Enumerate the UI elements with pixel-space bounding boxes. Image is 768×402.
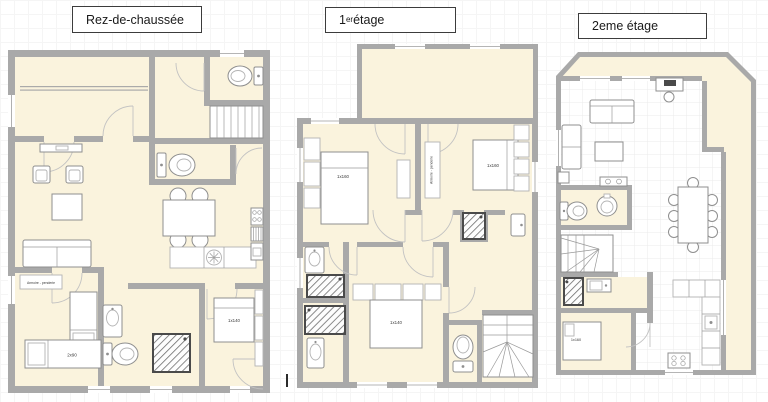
shower-icon [305, 306, 345, 334]
wardrobe-icon [397, 160, 410, 198]
chaise-icon [562, 125, 581, 169]
bathroom-sink-icon [103, 305, 122, 337]
bathroom-sink-icon [305, 247, 324, 273]
shower-icon [307, 275, 344, 297]
tv-unit-icon [40, 144, 82, 152]
floor-label-etage1-rest: étage [353, 13, 384, 27]
floor-label-etage1-num: 1 [339, 13, 346, 27]
closet-icon: Armoire - penderie [425, 142, 440, 198]
stairs-icon [561, 235, 613, 272]
bed-icon: 1x140 [214, 298, 254, 342]
floor-label-etage2-text: 2eme étage [592, 19, 658, 33]
floorplan-etage2: 1x160 [556, 50, 762, 390]
floor-label-rdc-text: Rez-de-chaussée [86, 13, 184, 27]
text-cursor-mark [286, 374, 288, 387]
bathroom-sink-icon [307, 338, 324, 368]
bedside-units-icon [304, 138, 320, 208]
kitchen-counter-icon [170, 247, 256, 268]
sofa-icon [23, 240, 91, 267]
shower-icon [463, 213, 485, 239]
bed-icon: 1x160 [473, 140, 518, 190]
coffee-table-icon [52, 194, 82, 220]
floor-label-etage1: 1er étage [325, 7, 456, 33]
bed-size-label: 1x160 [571, 338, 581, 342]
closet-label: Armoire - penderie [27, 281, 55, 285]
radiator-icon [251, 227, 263, 241]
stove-icon [251, 208, 263, 225]
stairs-icon [483, 315, 533, 377]
armchair-icon [66, 166, 83, 183]
toilet-icon [453, 335, 473, 372]
side-table-icon [558, 172, 569, 183]
coffee-table-icon [595, 142, 623, 161]
bed-icon: 1x160 [563, 322, 601, 360]
shower-icon [564, 278, 583, 305]
vanity-sink-icon [600, 177, 627, 186]
toilet-icon [560, 202, 587, 220]
bathroom-sink-icon [587, 279, 611, 292]
floorplan-rdc: Armoire - penderie 2x90 [8, 50, 270, 393]
sofa-icon [590, 100, 634, 123]
entry-door-icon [511, 214, 525, 236]
kitchen-sink-icon [251, 243, 263, 260]
bed-icon: 2x90 [25, 340, 101, 368]
bed-icon: 1x160 [321, 152, 368, 224]
floor-label-rdc: Rez-de-chaussée [72, 6, 202, 33]
bed-size-label: 1x140 [390, 320, 403, 325]
floorplan-etage1: 1x160 Armoire - penderie 1x160 [287, 42, 540, 390]
bed-icon [70, 292, 97, 344]
closet-icon: Armoire - penderie [20, 275, 62, 289]
toilet-icon [157, 153, 195, 177]
closet-label: Armoire - penderie [430, 156, 434, 184]
floorplan-document: Rez-de-chaussée 1er étage 2eme étage [0, 0, 768, 402]
bed-size-label: 1x160 [487, 163, 500, 168]
armchair-icon [33, 166, 50, 183]
stairs-icon [210, 106, 263, 138]
wardrobe-icon [255, 290, 263, 366]
toilet-icon [103, 343, 138, 365]
bed-size-label: 2x90 [67, 353, 77, 358]
shower-icon [153, 334, 190, 372]
toilet-icon [228, 66, 263, 86]
stove-icon [668, 353, 690, 368]
floor-label-etage2: 2eme étage [578, 13, 707, 39]
bed-size-label: 1x160 [337, 174, 350, 179]
bed-size-label: 1x140 [228, 318, 241, 323]
